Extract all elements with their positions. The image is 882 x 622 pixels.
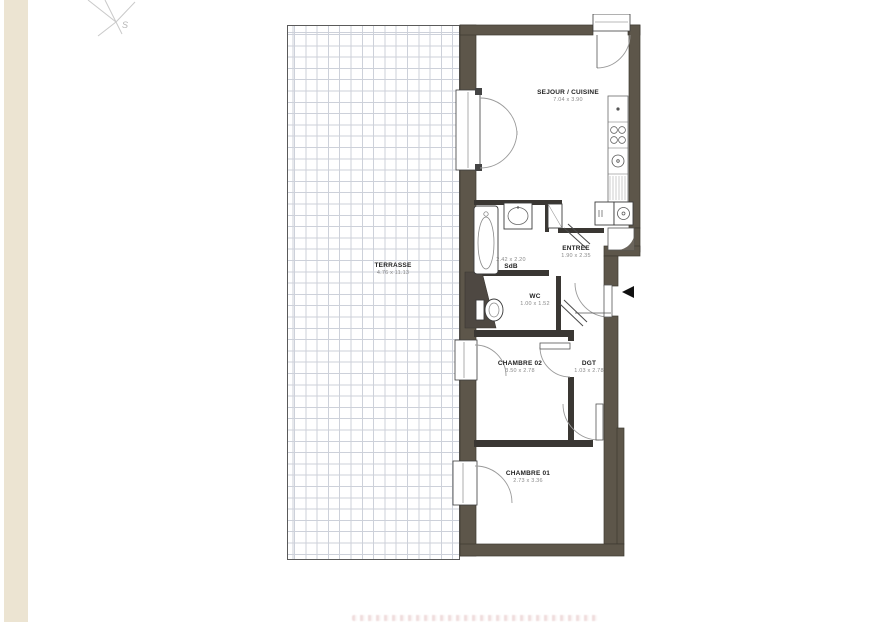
sejour-top-door-swing [597,35,630,68]
apartment-floorplan: TERRASSE 4.76 x 11.13 SEJOUR / CUISINE 7… [283,14,643,566]
sejour-top-window-frame [593,14,630,31]
left-accent-bar [4,0,28,622]
room-label-chambre-01: CHAMBRE 01 2.73 x 3.36 [506,470,550,484]
wall-right-entry-upper [604,256,618,286]
wall-right-step [617,428,624,544]
washer-box [595,202,614,225]
dryer-box [614,202,633,225]
partition-chambre02-dgt [568,377,574,444]
french-door-swing-upper [480,98,517,135]
room-dims: 1.03 x 2.78 [574,368,603,374]
chambre01-door-leaf [596,404,603,440]
partition-chambre01-top [474,440,593,447]
wall-bottom [460,544,624,556]
room-name: DGT [574,360,603,367]
appliance-boxes [595,202,633,225]
french-door-swing-lower [480,131,517,168]
chambre01-window-frame [453,461,477,505]
partition-wc-right [556,276,561,330]
toilet-icon [476,299,503,321]
sliding-doors [560,224,590,326]
bathtub-icon [474,206,498,274]
room-label-entree: ENTREE 1.90 x 2.35 [561,245,590,259]
chambre02-door-leaf [540,343,570,349]
compass-south-label: S [122,20,128,30]
room-dims: 1.90 x 2.35 [561,253,590,259]
room-label-sejour-cuisine: SEJOUR / CUISINE 7.04 x 3.90 [537,89,599,103]
room-dims: 7.04 x 3.90 [537,97,599,103]
room-dims: 4.76 x 11.13 [375,270,412,276]
room-label-dgt: DGT 1.03 x 2.78 [574,360,603,374]
room-name: ENTREE [561,245,590,252]
entry-arrow-icon [622,286,634,298]
partition-dgt-top-stub [568,337,574,341]
room-name: TERRASSE [375,262,412,269]
room-name: SEJOUR / CUISINE [537,89,599,96]
room-name: CHAMBRE 01 [506,470,550,477]
compass-icon [78,0,142,38]
room-label-chambre-02: CHAMBRE 02 3.50 x 2.78 [498,360,542,374]
room-label-wc: WC 1.00 x 1.52 [520,293,549,307]
chambre02-window-frame [455,340,477,380]
room-dims: 1.00 x 1.52 [520,301,549,307]
room-label-terrasse: TERRASSE 4.76 x 11.13 [375,262,412,276]
wall-right-lower [604,316,618,544]
washbasin-icon [504,203,532,229]
floorplan-page: S [0,0,882,622]
wall-right-upper [629,25,640,228]
room-dims: 3.50 x 2.78 [498,368,542,374]
room-label-sdb: 2.42 x 2.20 SdB [496,256,525,270]
wall-top-left [460,25,593,35]
duct-notch [608,228,634,250]
room-name: SdB [496,263,525,270]
partition-wc-chambre02 [474,330,574,337]
kitchen-point-icon [616,107,619,110]
chambre02-door-swing [540,347,570,377]
room-dims: 2.73 x 3.36 [506,478,550,484]
footer-watermark [352,615,598,621]
room-name: CHAMBRE 02 [498,360,542,367]
entry-door-leaf [604,285,612,317]
kitchen-counter [608,96,628,202]
duct-box-icon [548,204,562,228]
room-name: WC [520,293,549,300]
